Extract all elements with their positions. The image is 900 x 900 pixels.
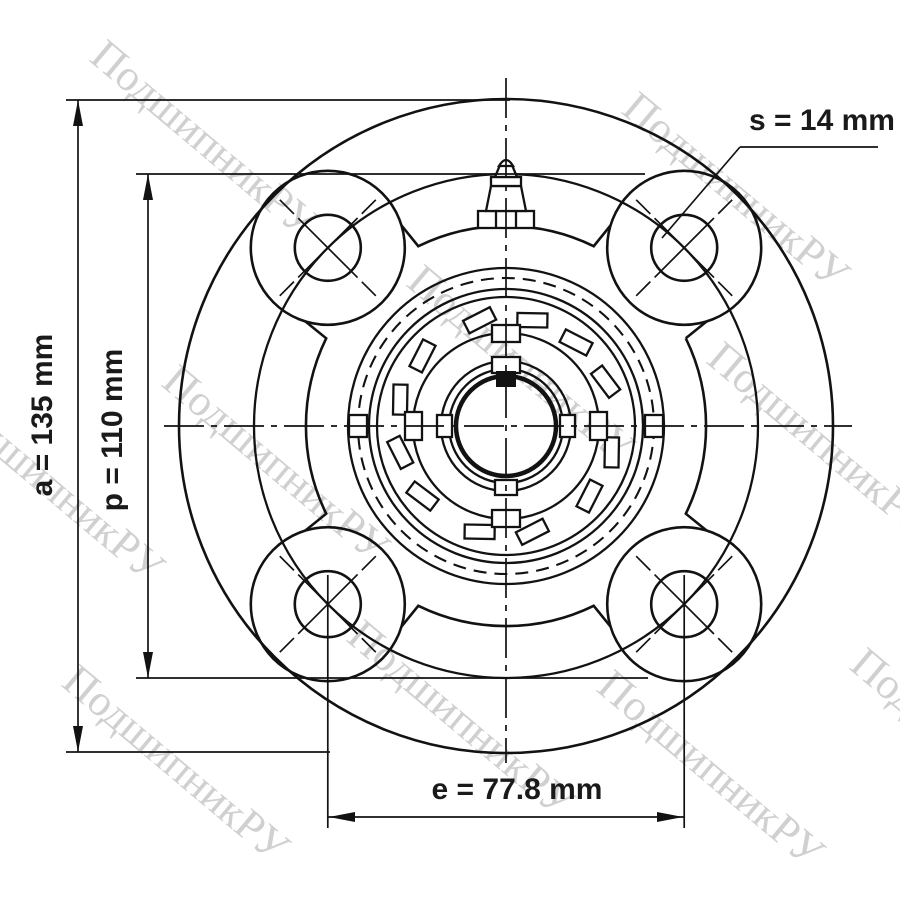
watermark-text: ПодшипникРУ xyxy=(54,655,300,872)
watermark-text: ПодшипникРУ xyxy=(699,332,900,549)
lock-washer-tab xyxy=(517,313,547,328)
dimension-e-arrow-left xyxy=(329,812,355,822)
dimension-a-arrow-down xyxy=(73,726,83,752)
dimension-s-label: s = 14 mm xyxy=(749,104,895,137)
lock-washer-tab xyxy=(393,385,408,415)
dimension-p-label: p = 110 mm xyxy=(96,349,129,512)
dimension-a-label: a = 135 mm xyxy=(26,334,59,497)
watermark-text: ПодшипникРУ xyxy=(589,660,835,877)
dimension-p-arrow-down xyxy=(143,652,153,678)
watermark-text: ПодшипникРУ xyxy=(82,30,328,247)
flanged-bearing-front-view-svg: ПодшипникРУ ПодшипникРУ ПодшипникРУ Подш… xyxy=(0,0,900,900)
dimension-e-label: e = 77.8 mm xyxy=(432,773,603,806)
lock-washer-tab xyxy=(576,480,602,513)
dimension-e-arrow-right xyxy=(657,812,683,822)
lock-washer-tab xyxy=(465,525,495,540)
lock-washer-tab xyxy=(605,437,620,467)
grease-fitting-collar xyxy=(491,177,521,186)
lock-washer-tab xyxy=(560,329,593,355)
dimension-a-arrow-up xyxy=(73,100,83,126)
lock-washer-tab xyxy=(409,339,435,372)
watermark-layer: ПодшипникРУ ПодшипникРУ ПодшипникРУ Подш… xyxy=(0,30,900,877)
watermark-text: ПодшипникРУ xyxy=(842,638,900,855)
bearing-technical-drawing: ПодшипникРУ ПодшипникРУ ПодшипникРУ Подш… xyxy=(0,0,900,900)
dimension-p-arrow-up xyxy=(143,174,153,200)
